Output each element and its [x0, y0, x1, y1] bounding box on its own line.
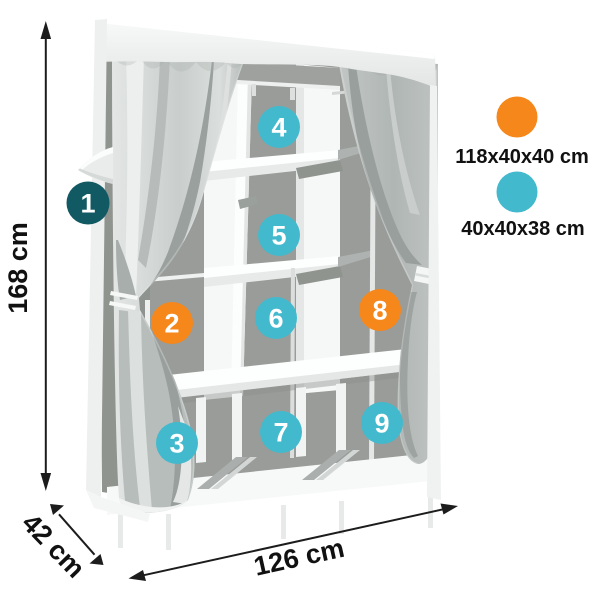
- svg-text:8: 8: [372, 296, 387, 326]
- svg-text:9: 9: [374, 409, 389, 439]
- svg-text:4: 4: [271, 113, 286, 143]
- svg-text:7: 7: [273, 418, 288, 448]
- svg-text:2: 2: [164, 309, 179, 339]
- svg-text:118x40x40 cm: 118x40x40 cm: [455, 146, 588, 168]
- svg-text:3: 3: [169, 429, 184, 459]
- svg-text:42 cm: 42 cm: [16, 508, 91, 584]
- svg-text:168 cm: 168 cm: [3, 222, 33, 314]
- svg-text:40x40x38 cm: 40x40x38 cm: [461, 218, 584, 240]
- svg-text:6: 6: [268, 304, 283, 334]
- svg-text:5: 5: [271, 221, 286, 251]
- svg-text:1: 1: [80, 189, 95, 219]
